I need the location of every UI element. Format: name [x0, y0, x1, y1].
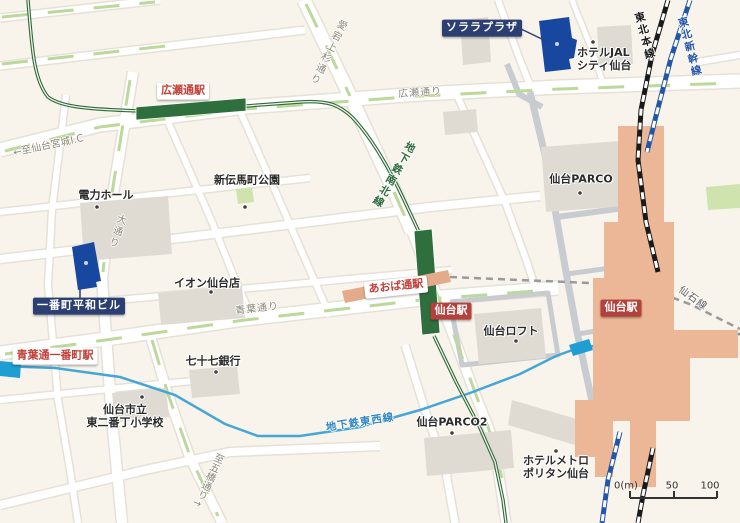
sendai-parco-label: 仙台PARCO	[549, 172, 612, 185]
scale-hundred: 100	[700, 481, 719, 492]
access-map: ソララプラザ ホテルJAL シティ仙台 東北本線 東北新幹線 広瀬通駅 広瀬通り…	[0, 0, 740, 523]
scale-zero: 0(m)	[614, 481, 638, 492]
parco2-building	[424, 430, 514, 476]
sendai-loft-label: 仙台ロフト	[484, 324, 539, 337]
school-label: 仙台市立 東二番丁小学校	[87, 403, 164, 429]
bank77-label: 七十七銀行	[186, 354, 241, 367]
scale-fifty: 50	[666, 481, 679, 492]
aobadori-ichibancho-station-label: 青葉通一番町駅	[13, 348, 98, 365]
sendai-jr-station-label: 仙台駅	[601, 300, 642, 317]
shintenmacho-park-area	[236, 187, 254, 204]
shintenmacho-park-label: 新伝馬町公園	[214, 173, 280, 186]
aeon-sendai-label: イオン仙台店	[174, 276, 240, 289]
denryoku-hall-label: 電力ホール	[79, 188, 134, 201]
sendai-subway-station-label: 仙台駅	[431, 303, 472, 320]
solara-plaza-label: ソララプラザ	[442, 20, 522, 37]
heiwa-building-label: 一番町平和ビル	[33, 298, 125, 315]
hirose-dori-street-label: 広瀬通り	[398, 82, 443, 100]
hotel-metropolitan-label: ホテルメトロ ポリタン仙台	[523, 454, 589, 480]
hirosedori-station-label: 広瀬通駅	[157, 83, 209, 100]
hotel-jal-label: ホテルJAL シティ仙台	[577, 46, 631, 72]
sendai-parco2-label: 仙台PARCO2	[416, 415, 487, 428]
map-canvas	[0, 0, 740, 523]
